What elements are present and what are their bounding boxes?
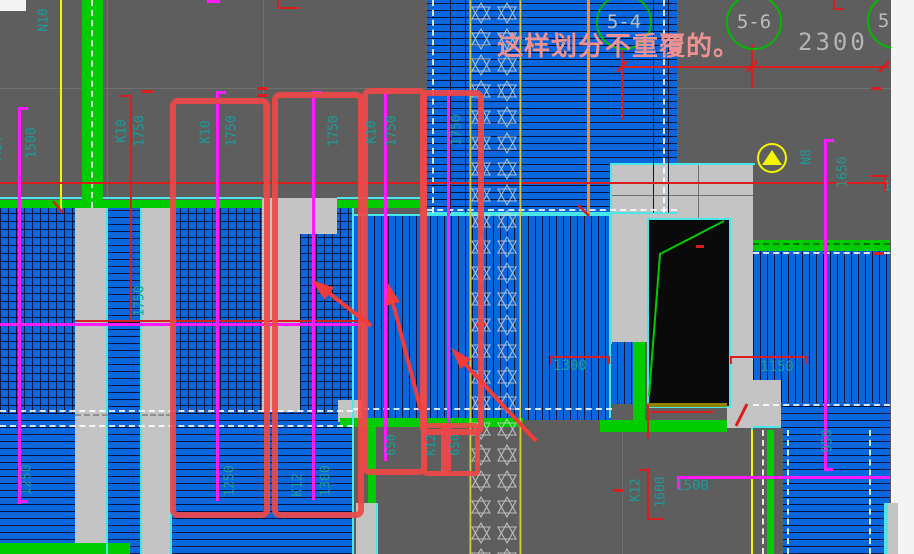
- paper-corner: [0, 0, 26, 11]
- green-band-shaft: [600, 420, 727, 432]
- dim-label-1250: 1250: [20, 464, 35, 495]
- dim-1150-line: [730, 356, 808, 358]
- dim-label-k10: K10: [365, 120, 380, 143]
- green-wall-centerline: [91, 0, 93, 208]
- green-band-dash: [753, 243, 890, 245]
- slab-dash-4: [753, 404, 890, 406]
- slab-vdash-3: [787, 430, 789, 554]
- dim-label-1500: 1500: [675, 478, 709, 494]
- rebar-6-hook-b: [824, 468, 833, 471]
- slab-shaft-left: [610, 342, 634, 404]
- annotation-rect-2[interactable]: [272, 92, 364, 518]
- wall-dashdot-1: [75, 414, 108, 416]
- dim-label-1650: 1650: [836, 156, 851, 187]
- dim-1150-t2: [806, 356, 808, 364]
- dim-label-k12: K12: [424, 434, 438, 456]
- slab-vdash-4: [869, 430, 871, 554]
- slab-left-lower: [0, 414, 75, 554]
- red-dash-2: [257, 87, 267, 90]
- wall-strip-2: [142, 208, 172, 554]
- bottom-right-wall-stub: [888, 503, 898, 554]
- dim-label-1500: 1500: [25, 127, 40, 158]
- dim-label-1750: 1750: [133, 285, 148, 316]
- dim-1150-t1: [730, 356, 732, 364]
- shaft-joint-2: [612, 195, 753, 196]
- shaft-sill-line: [647, 403, 727, 407]
- dim-line-top: [622, 66, 889, 68]
- bracket-t2-h: [833, 8, 844, 10]
- green-band-bottom-left: [0, 543, 130, 554]
- shaft-wall-left: [612, 218, 647, 342]
- red-dash-1: [142, 90, 153, 93]
- yellow-axis-1: [60, 0, 62, 209]
- wall-strip-1: [75, 208, 108, 554]
- green-strip-corridor: [767, 430, 774, 554]
- red-shaft-h: [652, 411, 713, 413]
- red-dash-6: [613, 489, 623, 492]
- rebar-1-hook-b: [18, 500, 28, 503]
- bracket-t1-h: [277, 7, 299, 9]
- dim-label-1750: 1750: [327, 115, 342, 146]
- rebar-1: [18, 107, 21, 504]
- dim-label-n10: N10: [37, 8, 52, 31]
- wall-dashdot-2: [142, 414, 172, 416]
- rebar-6-hook-t: [824, 139, 834, 142]
- dim-label-1750: 1750: [225, 115, 240, 146]
- slab-left-upper: [0, 208, 75, 414]
- dim-1600-foot: [647, 518, 664, 520]
- elevator-shaft: [647, 218, 731, 408]
- triangle-icon: [762, 150, 782, 165]
- red-shaft-v: [647, 405, 649, 438]
- dim-label-k12: K12: [629, 478, 644, 501]
- corridor-vdash: [762, 430, 764, 554]
- dim-label-k10: K10: [115, 119, 130, 142]
- rebar-tick-top: [207, 0, 220, 3]
- rebar-6: [824, 139, 827, 470]
- grid-bubble-label: 5-6: [737, 11, 771, 33]
- chinese-annotation: 这样划分不重覆的。: [497, 26, 740, 63]
- right-white-panel: [891, 0, 914, 554]
- dimension-2300: 2300: [798, 28, 868, 56]
- wall-stub-edge: [376, 503, 378, 554]
- red-ext-hook: [120, 95, 130, 97]
- dim-label-k10: K10: [199, 120, 214, 143]
- dim-label-1300: 1300: [553, 358, 587, 374]
- dim-label-1750: 1750: [133, 115, 148, 146]
- slab-center-right-edge: [609, 216, 611, 418]
- dim-label-1600: 1600: [654, 476, 669, 507]
- dim-label-650: 650: [384, 434, 398, 456]
- dim-label-1750: 1750: [450, 114, 465, 145]
- dim-label-1150: 1150: [760, 359, 794, 375]
- cad-canvas: 5-4 5-6 5-8 2300 这样划分不重覆的。 N10M141500K10…: [0, 0, 914, 554]
- dim-1600-line: [647, 468, 649, 520]
- red-dash-7: [871, 87, 881, 90]
- dim-1300-t2: [608, 356, 610, 364]
- dim-label-1250: 1250: [223, 465, 238, 496]
- rebar-2-hook: [216, 91, 226, 94]
- shaft-joint-1: [698, 165, 699, 218]
- rebar-h-2: [677, 476, 890, 479]
- dim-label-650: 650: [448, 434, 462, 456]
- elevation-marker-icon: [757, 143, 787, 173]
- red-dash-8: [874, 252, 884, 255]
- dim-label-1300: 1300: [319, 465, 334, 496]
- centerline-5-6: [751, 44, 753, 88]
- green-strip-shaft-left: [633, 342, 645, 422]
- red-dash-5: [696, 245, 704, 248]
- red-dash-3: [257, 94, 267, 97]
- right-slab-top-band: [753, 240, 890, 251]
- dim-label-950: 950: [821, 429, 836, 452]
- corridor-edge-right: [140, 208, 142, 554]
- annotation-rect-1[interactable]: [170, 98, 270, 518]
- yellow-axis-2: [751, 430, 753, 554]
- gridline-v1: [107, 0, 108, 198]
- corridor-edge-left: [106, 208, 108, 554]
- dim-1300-t1: [550, 356, 552, 364]
- dim-1600-tick: [639, 469, 647, 471]
- dim-label-m14: M14: [0, 136, 6, 159]
- dim-label-n8: N8: [800, 149, 815, 165]
- slab-dash-5: [753, 252, 890, 254]
- dim-label-1750: 1750: [385, 115, 400, 146]
- dim-label-k12: K12: [291, 473, 306, 496]
- gridline-v3: [622, 430, 623, 554]
- slab-corridor-vert: [108, 208, 142, 554]
- rebar-1-hook-t: [18, 107, 28, 110]
